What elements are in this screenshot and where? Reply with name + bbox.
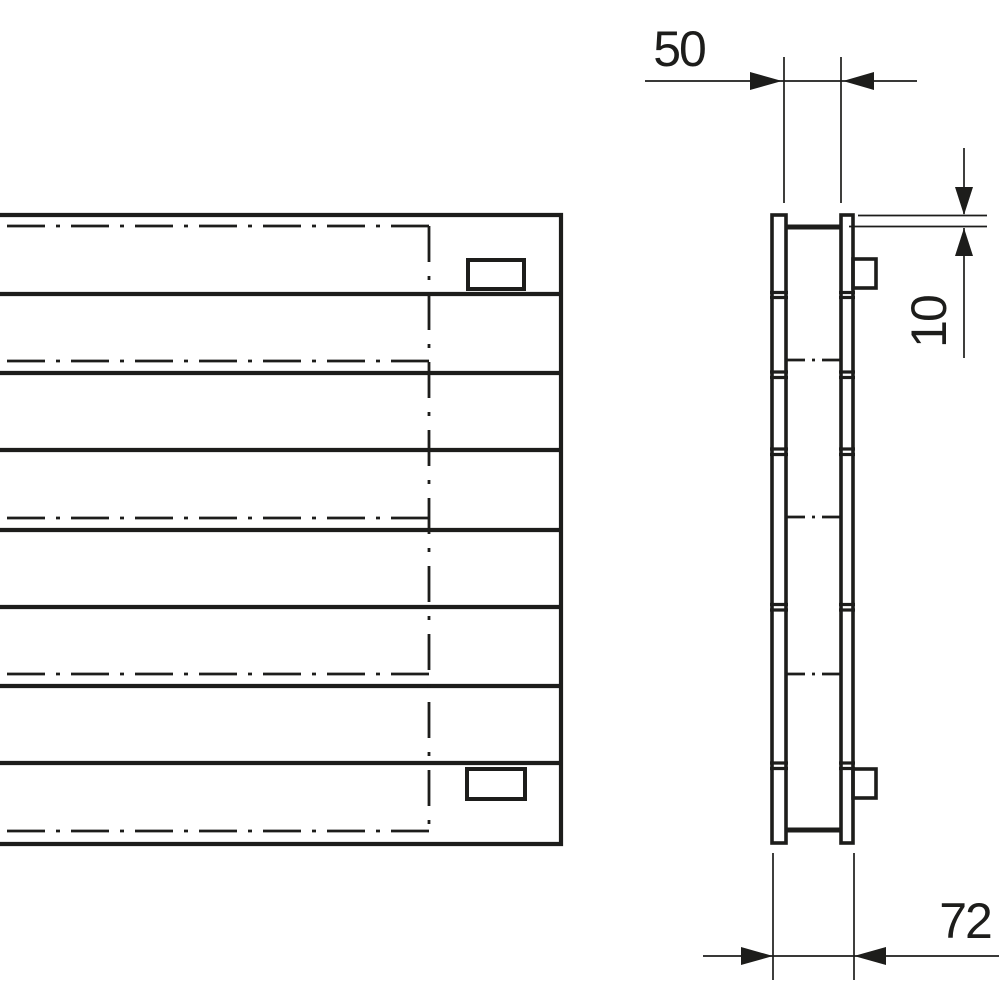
dimension-10: 10 (849, 148, 987, 358)
side-view-centerlines (786, 360, 841, 674)
side-view-front-rail (772, 215, 786, 843)
side-view-tab-top (853, 259, 876, 288)
side-view-back-rail (841, 215, 853, 843)
arrowhead-right-icon (750, 72, 782, 90)
side-view (770, 215, 876, 843)
technical-drawing: 50 10 72 (0, 0, 1000, 1000)
arrowhead-left-icon (843, 72, 874, 90)
dim-10-label: 10 (901, 296, 957, 348)
arrowhead-up-icon (955, 228, 973, 256)
dim-72-label: 72 (939, 893, 991, 949)
dimension-50: 50 (645, 21, 917, 203)
arrowhead-left-icon (854, 947, 886, 965)
dim-50-label: 50 (653, 21, 705, 77)
arrowhead-right-icon (741, 947, 773, 965)
dimension-72: 72 (703, 853, 999, 980)
arrowhead-down-icon (955, 187, 973, 215)
drawing-canvas: 50 10 72 (0, 0, 1000, 1000)
side-view-tab-bottom (853, 769, 876, 798)
front-view-bracket-top (468, 260, 524, 289)
front-view (0, 215, 561, 844)
front-view-bracket-bottom (467, 769, 525, 799)
front-view-slat-lines (0, 294, 561, 763)
